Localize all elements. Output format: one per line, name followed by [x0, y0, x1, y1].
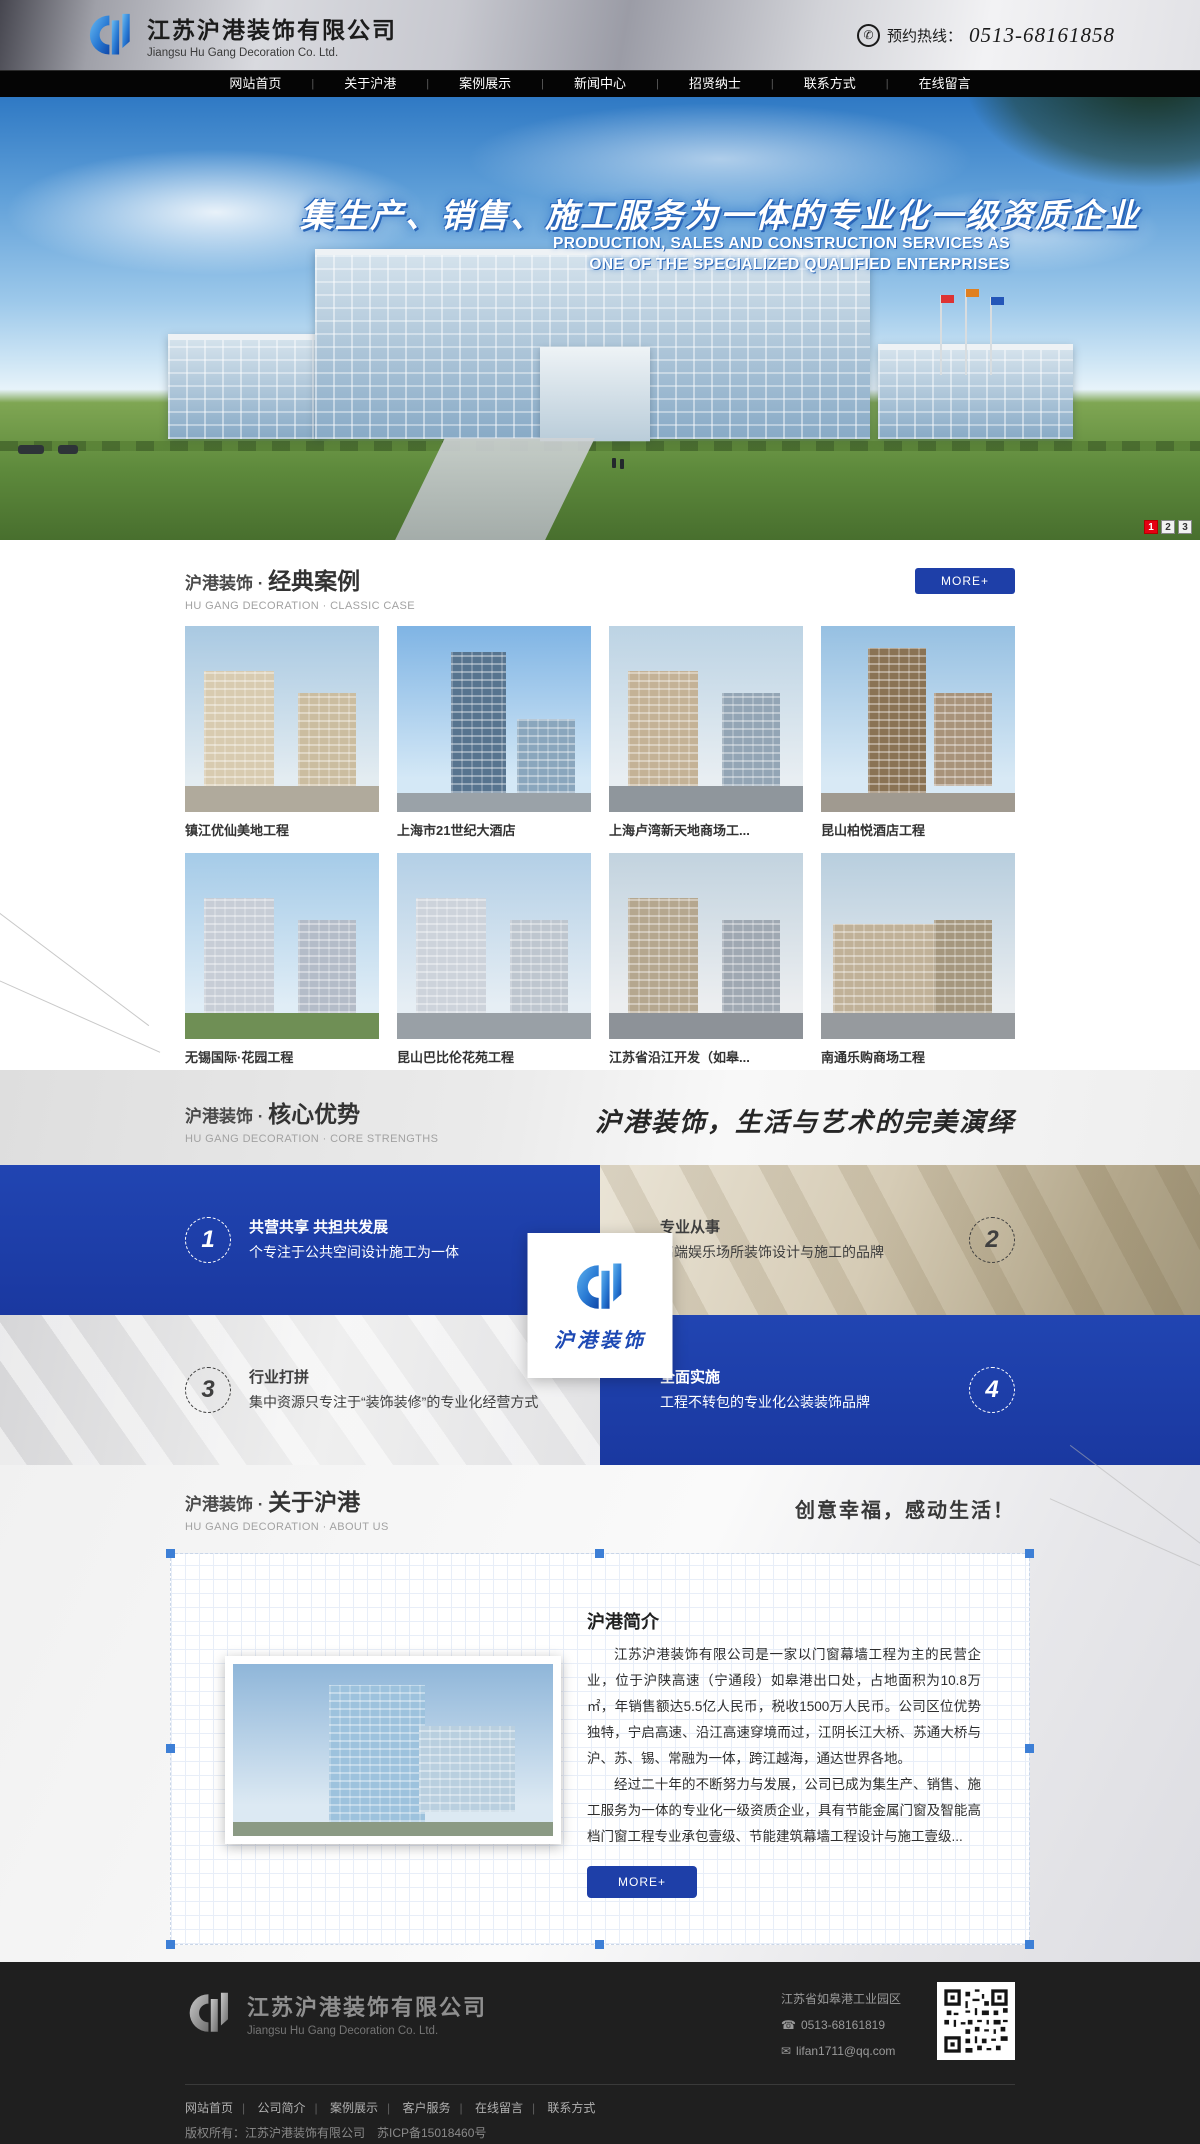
nav-item-home[interactable]: 网站首页 [199, 71, 311, 97]
company-name-en: Jiangsu Hu Gang Decoration Co. Ltd. [147, 47, 397, 59]
mail-icon: ✉ [781, 2044, 791, 2058]
footer-copyright: 版权所有：江苏沪港装饰有限公司 苏ICP备15018460号 [185, 2124, 1015, 2141]
strength-desc-4: 工程不转包的专业化公装装饰品牌 [660, 1390, 870, 1414]
strength-title-2: 专业从事 [660, 1216, 884, 1240]
case-card[interactable]: 无锡国际·花园工程 [185, 853, 379, 1066]
nav-item-cases[interactable]: 案例展示 [429, 71, 541, 97]
strength-band-3: 3 行业打拼 集中资源只专注于“装饰装修”的专业化经营方式 [0, 1315, 600, 1465]
footer-link-separator: | [387, 2101, 390, 2115]
hotline: ✆ 预约热线： 0513-68161858 [857, 23, 1115, 48]
company-logo-gray-icon [185, 1988, 235, 2038]
frame-handle [1025, 1940, 1034, 1949]
strengths-logo-card: 沪港装饰 [528, 1233, 673, 1378]
about-title-block: 沪港装饰 · 关于沪港 HU GANG DECORATION · ABOUT U… [185, 1483, 389, 1533]
strengths-title: 沪港装饰 · 核心优势 [185, 1095, 438, 1129]
about-more-button[interactable]: MORE+ [587, 1866, 697, 1898]
strength-item-3: 3 行业打拼 集中资源只专注于“装饰装修”的专业化经营方式 [0, 1315, 600, 1465]
banner-flag [966, 289, 979, 297]
strength-desc-1: 个专注于公共空间设计施工为一体 [249, 1240, 459, 1264]
case-caption: 上海市21世纪大酒店 [397, 820, 591, 839]
banner-pager-1[interactable]: 1 [1144, 520, 1158, 534]
strength-title-1: 共营共享 共担共发展 [249, 1216, 459, 1240]
footer-link-separator: | [242, 2101, 245, 2115]
nav-item-about[interactable]: 关于沪港 [314, 71, 426, 97]
about-subtitle: HU GANG DECORATION · ABOUT US [185, 1521, 389, 1533]
frame-handle [595, 1549, 604, 1558]
banner-car [18, 445, 44, 454]
about-title: 沪港装饰 · 关于沪港 [185, 1483, 389, 1517]
footer-info: 江苏省如皋港工业园区 ☎0513-68161819 ✉lifan1711@qq.… [781, 1986, 901, 2064]
case-caption: 昆山巴比伦花苑工程 [397, 1047, 591, 1066]
company-logo-icon [85, 9, 137, 61]
frame-handle [166, 1549, 175, 1558]
case-photo [821, 853, 1015, 1039]
banner-car [58, 445, 78, 454]
banner-person [612, 458, 616, 468]
strengths-title-block: 沪港装饰 · 核心优势 HU GANG DECORATION · CORE ST… [185, 1095, 438, 1145]
case-caption: 镇江优仙美地工程 [185, 820, 379, 839]
case-photo [397, 853, 591, 1039]
strength-title-3: 行业打拼 [249, 1366, 538, 1390]
case-photo [821, 626, 1015, 812]
frame-handle [1025, 1549, 1034, 1558]
footer-link-profile[interactable]: 公司简介 [257, 2101, 305, 2115]
strengths-section: 沪港装饰 · 核心优势 HU GANG DECORATION · CORE ST… [0, 1070, 1200, 1465]
footer-phone: ☎0513-68161819 [781, 2012, 901, 2038]
banner-building-entrance [540, 347, 650, 442]
phone-circle-icon: ✆ [857, 24, 880, 47]
cases-title: 沪港装饰 · 经典案例 [185, 562, 415, 596]
case-photo [609, 626, 803, 812]
banner-slogan-cn: 集生产、销售、施工服务为一体的专业化一级资质企业 [300, 189, 1040, 237]
case-photo [185, 853, 379, 1039]
case-photo [185, 626, 379, 812]
strength-item-4: 全面实施 工程不转包的专业化公装装饰品牌 4 [600, 1315, 1200, 1465]
strength-desc-3: 集中资源只专注于“装饰装修”的专业化经营方式 [249, 1390, 538, 1414]
case-photo [397, 626, 591, 812]
brand-text: 江苏沪港装饰有限公司 Jiangsu Hu Gang Decoration Co… [147, 11, 397, 59]
case-caption: 无锡国际·花园工程 [185, 1047, 379, 1066]
footer-link-contact[interactable]: 联系方式 [547, 2101, 595, 2115]
frame-handle [166, 1744, 175, 1753]
footer-email: ✉lifan1711@qq.com [781, 2038, 901, 2064]
case-card[interactable]: 镇江优仙美地工程 [185, 626, 379, 839]
case-card[interactable]: 上海卢湾新天地商场工... [609, 626, 803, 839]
footer-brand-text: 江苏沪港装饰有限公司 Jiangsu Hu Gang Decoration Co… [247, 1990, 487, 2037]
footer-link-cases[interactable]: 案例展示 [330, 2101, 378, 2115]
about-text: 沪港简介 江苏沪港装饰有限公司是一家以门窗幕墙工程为主的民营企业，位于沪陕高速（… [587, 1608, 981, 1924]
nav-item-message[interactable]: 在线留言 [889, 71, 1001, 97]
about-content: 沪港简介 江苏沪港装饰有限公司是一家以门窗幕墙工程为主的民营企业，位于沪陕高速（… [191, 1574, 1009, 1924]
footer-address: 江苏省如皋港工业园区 [781, 1986, 901, 2012]
frame-handle [1025, 1744, 1034, 1753]
banner-slogan-en-line1: PRODUCTION, SALES AND CONSTRUCTION SERVI… [553, 233, 1010, 254]
about-slogan: 创意幸福，感动生活！ [795, 1494, 1015, 1523]
banner-pager-2[interactable]: 2 [1161, 520, 1175, 534]
banner-slogan-en-line2: ONE OF THE SPECIALIZED QUALIFIED ENTERPR… [553, 254, 1010, 275]
footer-link-separator: | [532, 2101, 535, 2115]
footer-company-cn: 江苏沪港装饰有限公司 [247, 1990, 487, 2022]
frame-handle [166, 1940, 175, 1949]
banner-flag [991, 297, 1004, 305]
footer-link-message[interactable]: 在线留言 [475, 2101, 523, 2115]
case-card[interactable]: 昆山柏悦酒店工程 [821, 626, 1015, 839]
case-card[interactable]: 上海市21世纪大酒店 [397, 626, 591, 839]
about-paragraph-1: 江苏沪港装饰有限公司是一家以门窗幕墙工程为主的民营企业，位于沪陕高速（宁通段）如… [587, 1642, 981, 1772]
hotline-number: 0513-68161858 [969, 23, 1115, 48]
footer-link-separator: | [315, 2101, 318, 2115]
frame-handle [595, 1940, 604, 1949]
banner-building-right-wing [878, 344, 1073, 439]
strength-number-1: 1 [185, 1217, 231, 1263]
cases-section: 沪港装饰 · 经典案例 HU GANG DECORATION · CLASSIC… [0, 540, 1200, 1070]
strength-title-4: 全面实施 [660, 1366, 870, 1390]
cases-grid: 镇江优仙美地工程 上海市21世纪大酒店 上海卢湾新天地商场工... 昆山柏悦酒店… [185, 626, 1015, 1066]
cases-title-block: 沪港装饰 · 经典案例 HU GANG DECORATION · CLASSIC… [185, 562, 415, 612]
footer: 江苏沪港装饰有限公司 Jiangsu Hu Gang Decoration Co… [0, 1962, 1200, 2144]
strength-item-2: 专业从事 高端娱乐场所装饰设计与施工的品牌 2 [600, 1165, 1200, 1315]
hotline-label: 预约热线： [887, 25, 962, 46]
banner-pager-3[interactable]: 3 [1178, 520, 1192, 534]
about-heading: 沪港简介 [587, 1608, 981, 1634]
cases-more-button[interactable]: MORE+ [915, 568, 1015, 594]
banner-flagpole [940, 295, 942, 375]
case-card[interactable]: 江苏省沿江开发（如皋... [609, 853, 803, 1066]
banner-pager: 1 2 3 [1144, 520, 1192, 534]
case-caption: 上海卢湾新天地商场工... [609, 820, 803, 839]
nav-item-news[interactable]: 新闻中心 [544, 71, 656, 97]
logo-card-text: 沪港装饰 [554, 1324, 646, 1353]
banner-flagpole [990, 297, 992, 375]
strength-number-4: 4 [969, 1367, 1015, 1413]
banner-flag [941, 295, 954, 303]
company-name-cn: 江苏沪港装饰有限公司 [147, 11, 397, 45]
cases-subtitle: HU GANG DECORATION · CLASSIC CASE [185, 600, 415, 612]
banner-building-left-wing [168, 334, 323, 439]
strengths-header: 沪港装饰 · 核心优势 HU GANG DECORATION · CORE ST… [185, 1088, 1015, 1152]
strength-item-1: 1 共营共享 共担共发展 个专注于公共空间设计施工为一体 [0, 1165, 600, 1315]
footer-divider [185, 2084, 1015, 2085]
about-paragraph-2: 经过二十年的不断努力与发展，公司已成为集生产、销售、施工服务为一体的专业化一级资… [587, 1772, 981, 1850]
strengths-grid: 1 共营共享 共担共发展 个专注于公共空间设计施工为一体 专业从事 高端娱乐场所… [0, 1165, 1200, 1465]
hero-banner: 集生产、销售、施工服务为一体的专业化一级资质企业 PRODUCTION, SAL… [0, 97, 1200, 540]
case-photo [609, 853, 803, 1039]
case-card[interactable]: 昆山巴比伦花苑工程 [397, 853, 591, 1066]
cases-header: 沪港装饰 · 经典案例 HU GANG DECORATION · CLASSIC… [185, 562, 1015, 612]
footer-link-service[interactable]: 客户服务 [402, 2101, 450, 2115]
qr-code [937, 1982, 1015, 2060]
strength-band-4: 全面实施 工程不转包的专业化公装装饰品牌 4 [600, 1315, 1200, 1465]
footer-company-en: Jiangsu Hu Gang Decoration Co. Ltd. [247, 2025, 487, 2037]
strength-number-2: 2 [969, 1217, 1015, 1263]
strength-desc-2: 高端娱乐场所装饰设计与施工的品牌 [660, 1240, 884, 1264]
banner-person [620, 459, 624, 469]
top-header-inner: 江苏沪港装饰有限公司 Jiangsu Hu Gang Decoration Co… [85, 0, 1115, 70]
banner-hedge [0, 441, 1200, 451]
strength-band-1: 1 共营共享 共担共发展 个专注于公共空间设计施工为一体 [0, 1165, 600, 1315]
banner-slogan-en: PRODUCTION, SALES AND CONSTRUCTION SERVI… [553, 233, 1010, 275]
strength-band-2: 专业从事 高端娱乐场所装饰设计与施工的品牌 2 [600, 1165, 1200, 1315]
about-header: 沪港装饰 · 关于沪港 HU GANG DECORATION · ABOUT U… [185, 1479, 1015, 1537]
strengths-calligraphy: 沪港装饰，生活与艺术的完美演绎 [595, 1102, 1015, 1139]
banner-flagpole [965, 289, 967, 375]
about-photo [225, 1656, 561, 1844]
footer-link-separator: | [459, 2101, 462, 2115]
main-nav: 网站首页| 关于沪港| 案例展示| 新闻中心| 招贤纳士| 联系方式| 在线留言 [0, 71, 1200, 97]
brand[interactable]: 江苏沪港装饰有限公司 Jiangsu Hu Gang Decoration Co… [85, 9, 397, 61]
top-header: 江苏沪港装饰有限公司 Jiangsu Hu Gang Decoration Co… [0, 0, 1200, 71]
footer-brand: 江苏沪港装饰有限公司 Jiangsu Hu Gang Decoration Co… [185, 1988, 487, 2038]
strength-number-3: 3 [185, 1367, 231, 1413]
footer-links: 网站首页| 公司简介| 案例展示| 客户服务| 在线留言| 联系方式 [185, 2099, 1015, 2116]
about-frame: 沪港简介 江苏沪港装饰有限公司是一家以门窗幕墙工程为主的民营企业，位于沪陕高速（… [170, 1553, 1030, 1945]
company-logo-icon [571, 1258, 629, 1316]
case-caption: 昆山柏悦酒店工程 [821, 820, 1015, 839]
case-caption: 南通乐购商场工程 [821, 1047, 1015, 1066]
footer-link-home[interactable]: 网站首页 [185, 2101, 233, 2115]
nav-item-jobs[interactable]: 招贤纳士 [659, 71, 771, 97]
page: 江苏沪港装饰有限公司 Jiangsu Hu Gang Decoration Co… [0, 0, 1200, 2144]
phone-icon: ☎ [781, 2018, 796, 2032]
nav-item-contact[interactable]: 联系方式 [774, 71, 886, 97]
footer-top-row: 江苏沪港装饰有限公司 Jiangsu Hu Gang Decoration Co… [185, 1982, 1015, 2064]
case-card[interactable]: 南通乐购商场工程 [821, 853, 1015, 1066]
about-section: 沪港装饰 · 关于沪港 HU GANG DECORATION · ABOUT U… [0, 1465, 1200, 1962]
strengths-subtitle: HU GANG DECORATION · CORE STRENGTHS [185, 1133, 438, 1145]
banner-walkway [395, 438, 595, 540]
case-caption: 江苏省沿江开发（如皋... [609, 1047, 803, 1066]
